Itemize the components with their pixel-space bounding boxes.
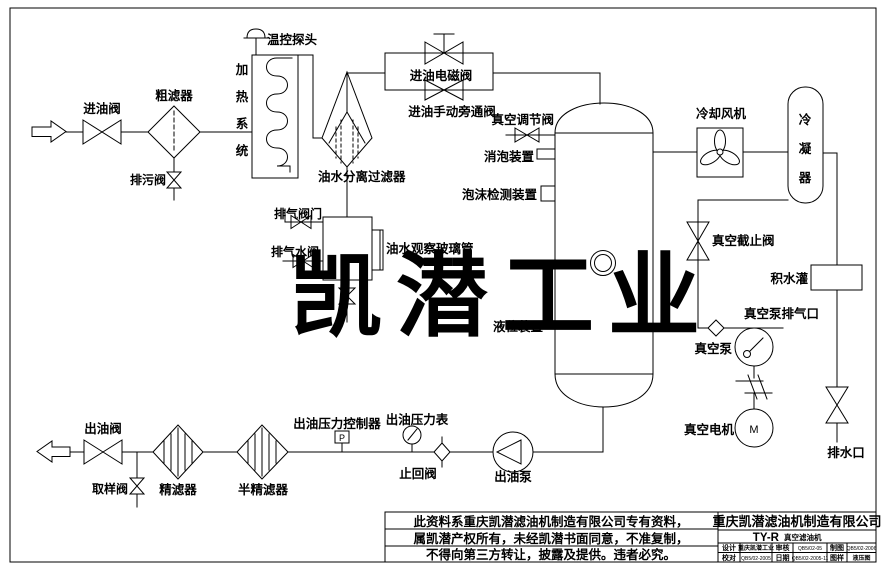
separator-filter-symbol [322, 72, 372, 167]
svg-text:校对: 校对 [722, 553, 736, 562]
svg-text:加: 加 [235, 62, 249, 77]
fine-filter-label: 精滤器 [159, 482, 197, 497]
outlet-pressure-controller-p: P [339, 433, 345, 443]
svg-text:凝: 凝 [799, 141, 812, 156]
semi-fine-filter-label: 半精滤器 [238, 482, 289, 497]
cooling-fan-symbol [697, 128, 743, 177]
svg-text:QB5/02-05: QB5/02-05 [798, 546, 822, 552]
vacuum-motor-label: 真空电机 [684, 422, 735, 437]
defoaming-device-label: 消泡装置 [484, 149, 535, 164]
svg-text:日期: 日期 [776, 553, 790, 562]
liquid-level-device-label: 液位装置 [493, 319, 544, 334]
oil-water-sight-glass-label: 油水观察玻璃管 [386, 241, 474, 256]
svg-text:QB5/02-2006: QB5/02-2006 [847, 546, 877, 552]
outlet-pressure-controller-label: 出油压力控制器 [293, 416, 381, 431]
inlet-valve-symbol [83, 120, 121, 144]
svg-text:不得向第三方转让，披露及提供。违者必究。: 不得向第三方转让，披露及提供。违者必究。 [426, 547, 676, 562]
foam-detection-device-label: 泡沫检测装置 [462, 187, 538, 202]
water-collection-tank-symbol [811, 265, 862, 290]
semi-fine-filter-symbol [237, 425, 288, 479]
inlet-flow-arrow [32, 121, 66, 142]
svg-text:器: 器 [798, 171, 812, 185]
outlet-valve-label: 出油阀 [84, 421, 122, 436]
vacuum-motor-m: M [749, 424, 758, 436]
heating-system-label: 加 热 系 统 [235, 62, 249, 158]
svg-text:热: 热 [236, 89, 249, 104]
svg-text:QB5/02-2005: QB5/02-2005 [741, 556, 771, 562]
outlet-pump-label: 出油泵 [494, 469, 532, 484]
temp-probe-symbol [244, 29, 268, 55]
blowdown-valve-label: 排污阀 [130, 172, 166, 187]
svg-text:液压图: 液压图 [852, 554, 870, 562]
vacuum-pump-symbol [735, 328, 773, 366]
svg-text:统: 统 [236, 143, 249, 158]
title-block-model: TY-R [753, 532, 780, 544]
coarse-filter-symbol [148, 106, 200, 158]
outlet-pressure-gauge-symbol [403, 426, 421, 452]
water-collection-tank-label: 积水灌 [770, 271, 808, 286]
diagram-svg: 凯潜工业 进油阀 粗滤器 [0, 0, 884, 569]
condenser-label: 冷 凝 器 [798, 112, 812, 185]
svg-text:制图: 制图 [830, 543, 844, 552]
drain-outlet-label: 排水口 [827, 445, 865, 460]
outlet-pump-symbol [493, 432, 533, 472]
inlet-manual-bypass-valve-label: 进油手动旁通阀 [408, 104, 496, 119]
exhaust-water-valve-label: 排气水阀 [271, 244, 319, 259]
cooling-fan-label: 冷却风机 [696, 106, 747, 121]
drain-outlet-valve-symbol [826, 387, 848, 423]
svg-text:重庆凯潜工业: 重庆凯潜工业 [738, 544, 774, 552]
vacuum-stop-valve-label: 真空截止阀 [712, 233, 775, 248]
foam-detection-device-symbol [541, 186, 555, 201]
svg-text:QB5/02-2005-11: QB5/02-2005-11 [792, 556, 829, 562]
blowdown-valve-symbol [167, 172, 181, 188]
title-block-company: 重庆凯潜滤油机制造有限公司 [712, 514, 881, 529]
check-valve-label: 止回阀 [399, 466, 437, 481]
pid-drawing: 凯潜工业 进油阀 粗滤器 [0, 0, 884, 569]
inlet-solenoid-valve-symbol [425, 34, 463, 64]
title-block-model-name: 真空滤油机 [784, 532, 822, 542]
exhaust-valve-label: 排气阀门 [274, 206, 322, 221]
svg-text:系: 系 [236, 116, 249, 131]
vacuum-pump-exhaust-label: 真空泵排气口 [744, 306, 819, 321]
sampling-valve-symbol [130, 478, 144, 494]
outlet-flow-arrow [37, 441, 70, 462]
temp-probe-label: 温控探头 [267, 32, 318, 47]
inlet-valve-label: 进油阀 [83, 101, 121, 116]
warning-text: 此资料系重庆凯潜滤油机制造有限公司专有资料， 属凯潜产权所有，未经凯潜书面同意，… [413, 514, 688, 562]
outlet-pressure-gauge-label: 出油压力表 [386, 412, 449, 427]
vacuum-regulating-valve-label: 真空调节阀 [491, 112, 554, 127]
check-valve-symbol [434, 437, 450, 467]
svg-text:设计: 设计 [722, 543, 736, 552]
svg-text:图样: 图样 [830, 553, 844, 562]
sampling-valve-label: 取样阀 [92, 481, 128, 496]
heating-system-symbol [252, 55, 298, 178]
defoaming-device-symbol [537, 149, 555, 159]
coarse-filter-label: 粗滤器 [155, 88, 193, 103]
fine-filter-symbol [153, 425, 203, 479]
separator-filter-label: 油水分离过滤器 [318, 169, 406, 184]
outlet-valve-symbol [84, 440, 122, 464]
svg-text:此资料系重庆凯潜滤油机制造有限公司专有资料，: 此资料系重庆凯潜滤油机制造有限公司专有资料， [413, 514, 688, 529]
vacuum-pump-label: 真空泵 [694, 341, 732, 356]
svg-text:冷: 冷 [799, 112, 812, 127]
svg-text:属凯潜产权所有，未经凯潜书面同意，不准复制，: 属凯潜产权所有，未经凯潜书面同意，不准复制， [413, 531, 688, 546]
svg-text:审核: 审核 [776, 543, 790, 552]
